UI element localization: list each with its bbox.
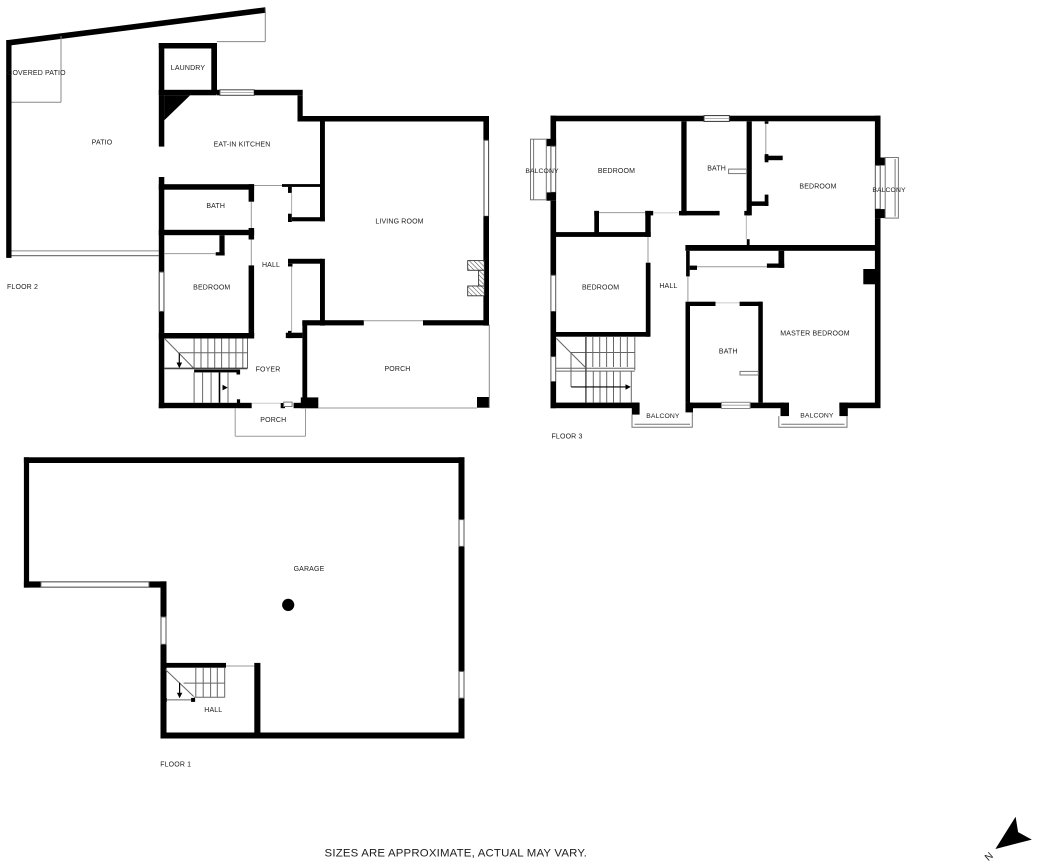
svg-text:LIVING ROOM: LIVING ROOM: [375, 219, 423, 226]
svg-text:BALCONY: BALCONY: [872, 187, 906, 194]
svg-text:EAT-IN KITCHEN: EAT-IN KITCHEN: [214, 142, 271, 149]
svg-text:BEDROOM: BEDROOM: [582, 284, 619, 291]
svg-text:HALL: HALL: [204, 707, 222, 714]
svg-text:BALCONY: BALCONY: [800, 413, 834, 420]
svg-text:MASTER BEDROOM: MASTER BEDROOM: [780, 331, 849, 338]
svg-text:BEDROOM: BEDROOM: [799, 184, 836, 191]
svg-text:GARAGE: GARAGE: [294, 566, 325, 573]
svg-text:FOYER: FOYER: [256, 367, 281, 374]
svg-text:BEDROOM: BEDROOM: [193, 285, 230, 292]
svg-text:SIZES ARE APPROXIMATE, ACTUAL: SIZES ARE APPROXIMATE, ACTUAL MAY VARY.: [325, 848, 587, 860]
svg-text:LAUNDRY: LAUNDRY: [171, 65, 206, 72]
svg-text:HALL: HALL: [262, 262, 280, 269]
svg-text:COVERED PATIO: COVERED PATIO: [7, 70, 66, 77]
svg-text:BATH: BATH: [707, 166, 726, 173]
svg-text:FLOOR 3: FLOOR 3: [552, 433, 583, 440]
svg-text:HALL: HALL: [659, 283, 677, 290]
svg-text:PORCH: PORCH: [260, 417, 286, 424]
svg-text:FLOOR 1: FLOOR 1: [160, 762, 191, 769]
svg-text:PORCH: PORCH: [384, 366, 410, 373]
svg-text:BEDROOM: BEDROOM: [598, 168, 635, 175]
svg-text:PATIO: PATIO: [92, 140, 113, 147]
svg-text:BALCONY: BALCONY: [525, 168, 559, 175]
svg-text:BALCONY: BALCONY: [646, 413, 680, 420]
svg-text:FLOOR 2: FLOOR 2: [7, 284, 38, 291]
svg-text:BATH: BATH: [206, 203, 225, 210]
svg-text:BATH: BATH: [719, 348, 738, 355]
